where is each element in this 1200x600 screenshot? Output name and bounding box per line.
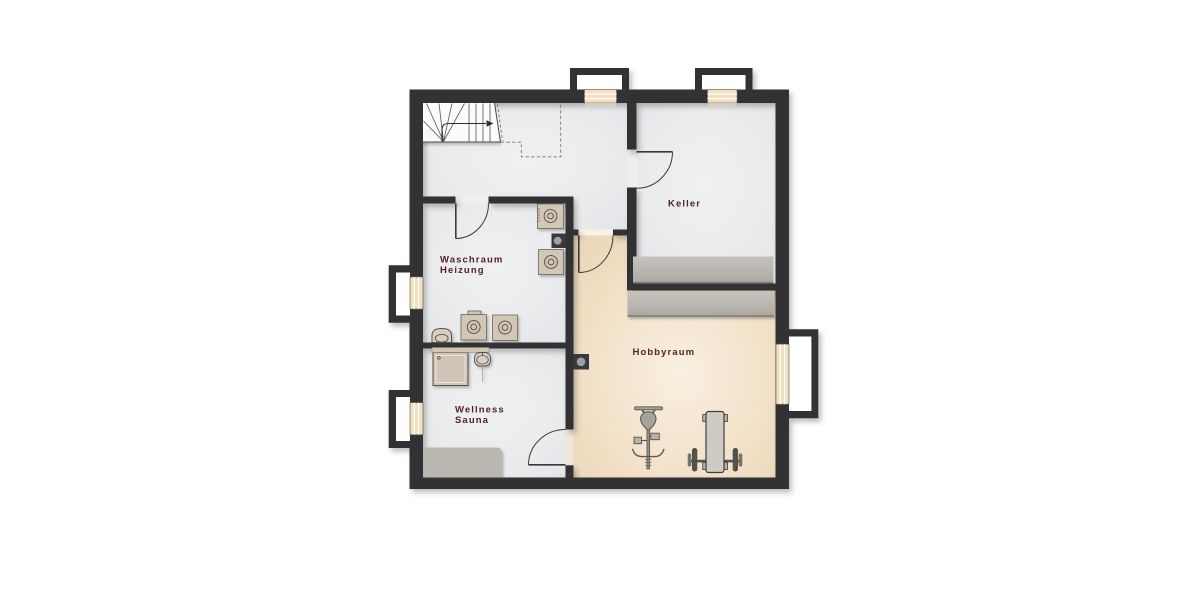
- svg-text:Hobbyraum: Hobbyraum: [633, 347, 696, 358]
- svg-text:Sauna: Sauna: [455, 415, 489, 426]
- svg-text:Heizung: Heizung: [440, 265, 485, 276]
- svg-text:Keller: Keller: [668, 199, 701, 210]
